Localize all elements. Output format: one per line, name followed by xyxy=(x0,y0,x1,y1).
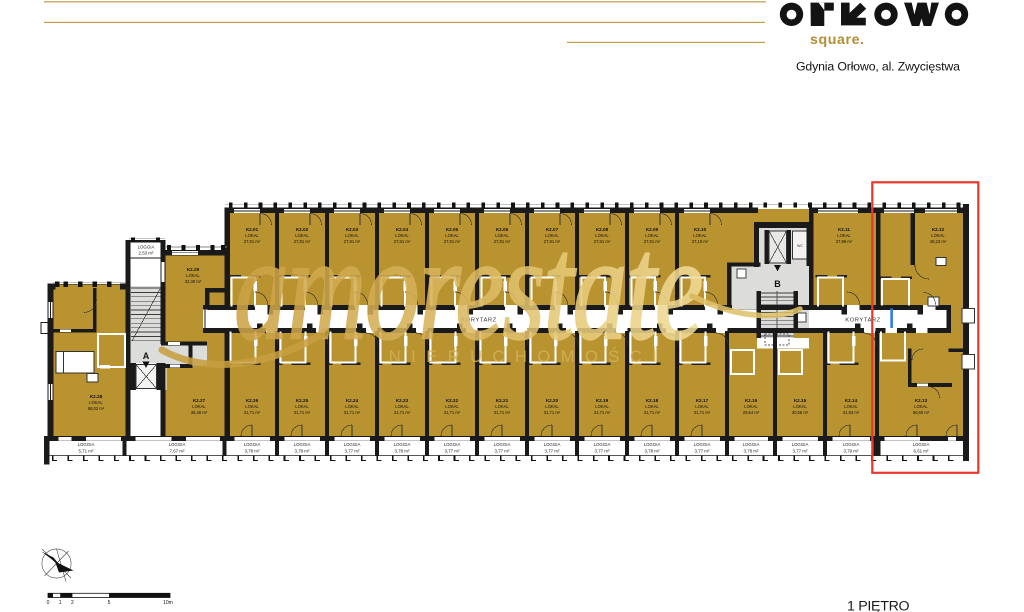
svg-text:31,71 m²: 31,71 m² xyxy=(244,410,261,415)
svg-text:3,78 m²: 3,78 m² xyxy=(395,449,410,454)
svg-text:KORYTARZ: KORYTARZ xyxy=(845,318,881,324)
svg-text:K2.29: K2.29 xyxy=(187,267,200,272)
svg-text:3,77 m²: 3,77 m² xyxy=(595,449,610,454)
svg-text:3,79 m²: 3,79 m² xyxy=(844,449,859,454)
svg-text:LOGGIA: LOGGIA xyxy=(743,442,760,447)
svg-text:3,77 m²: 3,77 m² xyxy=(695,449,710,454)
svg-text:LOGGIA: LOGGIA xyxy=(644,442,661,447)
svg-text:LOKAL: LOKAL xyxy=(345,404,359,409)
svg-text:K2.23: K2.23 xyxy=(396,398,409,403)
svg-text:5,71 m²: 5,71 m² xyxy=(79,449,94,454)
svg-text:3,77 m²: 3,77 m² xyxy=(445,449,460,454)
svg-text:LOGGIA: LOGGIA xyxy=(169,442,186,447)
svg-text:K2.21: K2.21 xyxy=(496,398,509,403)
svg-text:3,77 m²: 3,77 m² xyxy=(793,449,808,454)
svg-text:B: B xyxy=(774,279,781,289)
svg-text:68,02 m²: 68,02 m² xyxy=(88,406,105,411)
svg-text:LOKAL: LOKAL xyxy=(245,404,259,409)
svg-text:10m: 10m xyxy=(163,600,173,606)
svg-text:square.: square. xyxy=(810,32,865,48)
svg-text:31,71 m²: 31,71 m² xyxy=(394,410,411,415)
svg-text:3,77 m²: 3,77 m² xyxy=(495,449,510,454)
svg-text:LOGGIA: LOGGIA xyxy=(138,245,155,250)
svg-text:LOGGIA: LOGGIA xyxy=(78,442,95,447)
svg-text:32,30 m²: 32,30 m² xyxy=(185,279,202,284)
svg-text:K2.24: K2.24 xyxy=(346,398,359,403)
svg-text:LOKAL: LOKAL xyxy=(931,233,945,238)
svg-text:LOKAL: LOKAL xyxy=(395,404,409,409)
svg-text:31,83 m²: 31,83 m² xyxy=(843,410,860,415)
svg-text:LOKAL: LOKAL xyxy=(793,404,807,409)
svg-text:LOGGIA: LOGGIA xyxy=(792,442,809,447)
svg-text:LOKAL: LOKAL xyxy=(645,404,659,409)
svg-text:7,67 m²: 7,67 m² xyxy=(170,449,185,454)
svg-text:LOKAL: LOKAL xyxy=(192,404,206,409)
svg-text:LOGGIA: LOGGIA xyxy=(294,442,311,447)
svg-text:K2.17: K2.17 xyxy=(696,398,709,403)
svg-text:0: 0 xyxy=(47,600,50,606)
svg-text:K2.14: K2.14 xyxy=(845,398,858,403)
svg-text:31,71 m²: 31,71 m² xyxy=(294,410,311,415)
svg-text:LOKAL: LOKAL xyxy=(295,404,309,409)
svg-text:31,71 m²: 31,71 m² xyxy=(344,410,361,415)
svg-text:1: 1 xyxy=(59,600,62,606)
svg-text:K2.16: K2.16 xyxy=(745,398,758,403)
svg-text:3,77 m²: 3,77 m² xyxy=(345,449,360,454)
svg-text:K2.11: K2.11 xyxy=(838,227,850,232)
svg-text:LOKAL: LOKAL xyxy=(186,273,200,278)
svg-text:31,71 m²: 31,71 m² xyxy=(694,410,711,415)
svg-text:K2.22: K2.22 xyxy=(446,398,459,403)
svg-text:2: 2 xyxy=(71,600,74,606)
svg-text:1 PIĘTRO: 1 PIĘTRO xyxy=(847,599,910,612)
svg-text:K2.26: K2.26 xyxy=(246,398,259,403)
svg-text:A: A xyxy=(143,351,150,361)
svg-text:K2.20: K2.20 xyxy=(546,398,559,403)
svg-text:31,71 m²: 31,71 m² xyxy=(544,410,561,415)
svg-text:36,40 m²: 36,40 m² xyxy=(191,410,208,415)
svg-text:3,78 m²: 3,78 m² xyxy=(645,449,660,454)
svg-text:K2.25: K2.25 xyxy=(296,398,309,403)
svg-text:LOKAL: LOKAL xyxy=(495,404,509,409)
svg-text:LOGGIA: LOGGIA xyxy=(913,442,930,447)
svg-text:LOGGIA: LOGGIA xyxy=(444,442,461,447)
svg-text:LOGGIA: LOGGIA xyxy=(594,442,611,447)
svg-text:LOGGIA: LOGGIA xyxy=(244,442,261,447)
svg-text:LOKAL: LOKAL xyxy=(89,400,103,405)
svg-text:2,53 m²: 2,53 m² xyxy=(139,250,154,255)
svg-text:31,71 m²: 31,71 m² xyxy=(494,410,511,415)
svg-text:LOKAL: LOKAL xyxy=(545,404,559,409)
svg-text:3,77 m²: 3,77 m² xyxy=(545,449,560,454)
svg-text:31,71 m²: 31,71 m² xyxy=(594,410,611,415)
svg-text:3,78 m²: 3,78 m² xyxy=(744,449,759,454)
svg-text:LOKAL: LOKAL xyxy=(595,404,609,409)
svg-text:5: 5 xyxy=(108,600,111,606)
svg-text:37,99 m²: 37,99 m² xyxy=(836,239,853,244)
svg-text:K2.19: K2.19 xyxy=(596,398,609,403)
svg-text:30,55 m²: 30,55 m² xyxy=(792,410,809,415)
svg-text:31,71 m²: 31,71 m² xyxy=(444,410,461,415)
svg-text:LOGGIA: LOGGIA xyxy=(344,442,361,447)
svg-text:WC: WC xyxy=(797,244,803,248)
svg-text:NIERUCHOMOŚCI: NIERUCHOMOŚCI xyxy=(389,347,668,366)
svg-text:LOGGIA: LOGGIA xyxy=(394,442,411,447)
svg-text:6,61 m²: 6,61 m² xyxy=(914,449,929,454)
svg-text:LOGGIA: LOGGIA xyxy=(494,442,511,447)
svg-text:K2.27: K2.27 xyxy=(193,398,206,403)
svg-text:LOGGIA: LOGGIA xyxy=(694,442,711,447)
svg-text:LOKAL: LOKAL xyxy=(695,404,709,409)
svg-text:K2.28: K2.28 xyxy=(90,394,103,399)
svg-text:K2.15: K2.15 xyxy=(794,398,807,403)
svg-text:3,78 m²: 3,78 m² xyxy=(245,449,260,454)
svg-text:LOKAL: LOKAL xyxy=(914,404,928,409)
svg-text:60,60 m²: 60,60 m² xyxy=(913,410,930,415)
svg-text:Gdynia Orłowo, al. Zwycięstwa: Gdynia Orłowo, al. Zwycięstwa xyxy=(796,60,960,74)
svg-text:LOKAL: LOKAL xyxy=(744,404,758,409)
svg-text:K2.12: K2.12 xyxy=(932,227,945,232)
svg-text:29,64 m²: 29,64 m² xyxy=(743,410,760,415)
svg-text:31,71 m²: 31,71 m² xyxy=(644,410,661,415)
svg-text:LOKAL: LOKAL xyxy=(844,404,858,409)
svg-text:LOKAL: LOKAL xyxy=(837,233,851,238)
svg-text:49,23 m²: 49,23 m² xyxy=(930,239,947,244)
svg-text:LOKAL: LOKAL xyxy=(445,404,459,409)
svg-text:3,78 m²: 3,78 m² xyxy=(295,449,310,454)
svg-text:LOGGIA: LOGGIA xyxy=(843,442,860,447)
svg-text:LOGGIA: LOGGIA xyxy=(544,442,561,447)
svg-text:K2.18: K2.18 xyxy=(646,398,659,403)
svg-text:K2.13: K2.13 xyxy=(915,398,928,403)
